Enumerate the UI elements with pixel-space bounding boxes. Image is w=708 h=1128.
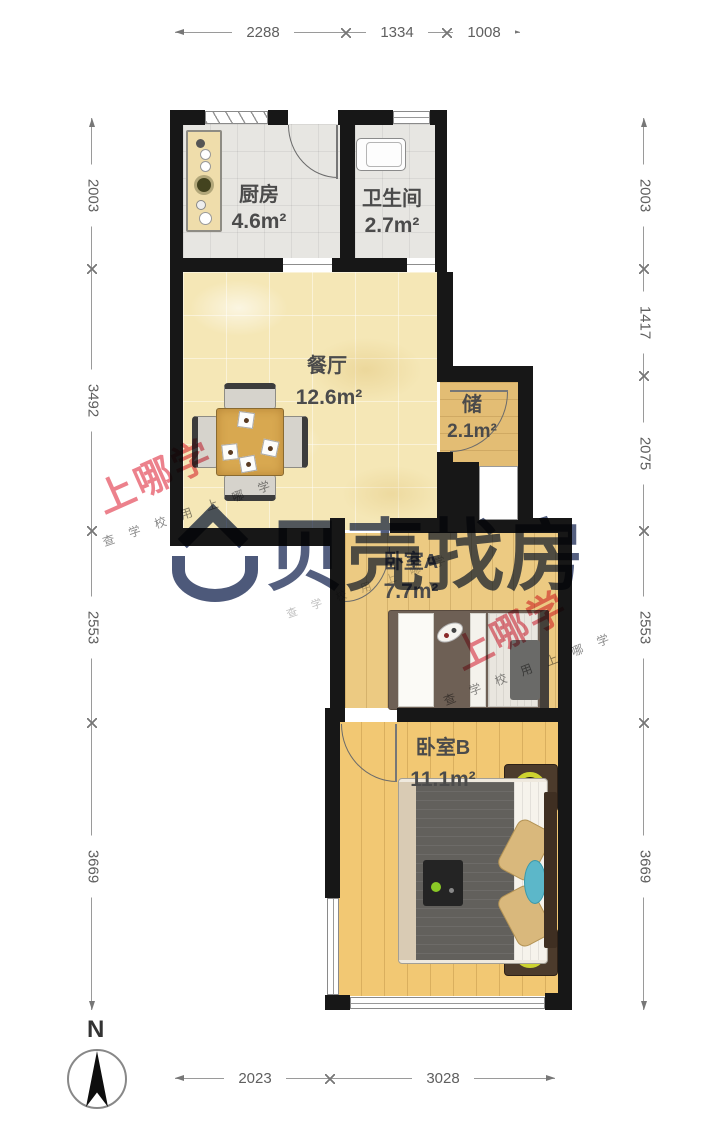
bathroom-label: 卫生间 — [352, 188, 432, 210]
bedroom-b-area: 11.1m² — [397, 768, 489, 791]
wall-segment — [332, 258, 355, 272]
wall-bath-right — [435, 110, 447, 272]
watermark-logo-smile-icon — [172, 556, 258, 602]
dining-label: 餐厅 — [287, 355, 367, 377]
wall-filler-block — [437, 462, 479, 522]
wall-bedroom-a-right — [558, 518, 572, 722]
place-setting — [237, 411, 255, 429]
wall-segment — [435, 258, 447, 272]
dimension-joint-icon — [639, 264, 649, 274]
dimension-joint-icon — [442, 28, 452, 38]
opening-threshold — [407, 264, 435, 265]
dimension-joint-icon — [639, 526, 649, 536]
sink-bowl-icon — [200, 161, 211, 172]
bathtub — [356, 138, 406, 171]
dim-left-1: 2003 — [85, 165, 102, 227]
shaft-box — [479, 466, 518, 520]
dimension-joint-icon — [639, 718, 649, 728]
hob-icon — [196, 200, 206, 210]
kitchen-label: 厨房 — [219, 184, 299, 206]
storage-door-leaf — [450, 390, 508, 392]
dimension-joint-icon — [87, 526, 97, 536]
bed-b-edge — [399, 782, 416, 960]
dining-chair-left — [192, 416, 219, 468]
sink-bowl-icon — [200, 149, 211, 160]
dim-right-5: 3669 — [637, 836, 654, 898]
dim-bottom-1: 2023 — [224, 1070, 286, 1087]
dining-chair-right — [281, 416, 308, 468]
bed-a-headboard — [540, 610, 549, 710]
north-label: N — [87, 1016, 104, 1044]
kitchen-area: 4.6m² — [219, 210, 299, 233]
dimension-joint-icon — [87, 264, 97, 274]
place-setting — [261, 439, 280, 458]
dimension-chain-top: 2288 1334 1008 — [175, 24, 520, 41]
dim-left-2: 3492 — [85, 370, 102, 432]
bathtub-inner — [366, 142, 402, 167]
dimension-joint-icon — [87, 718, 97, 728]
bedroom-b-label: 卧室B — [403, 737, 483, 759]
dim-left-3: 2553 — [85, 597, 102, 659]
entry-door-leaf — [336, 125, 338, 179]
dim-top-2: 1334 — [366, 24, 428, 41]
dining-chair-bottom — [224, 474, 276, 501]
stove-burner-icon — [197, 178, 211, 192]
dimension-joint-icon — [325, 1074, 335, 1084]
dimension-joint-icon — [639, 371, 649, 381]
bedroom-a-area: 7.7m² — [371, 580, 451, 603]
hob-icon — [199, 212, 212, 225]
wall-dining-right — [437, 272, 453, 376]
dim-left-4: 3669 — [85, 836, 102, 898]
wall-dining-bottom — [170, 528, 345, 546]
bedroom-b-left-window — [327, 898, 339, 995]
dim-top-3: 1008 — [453, 24, 515, 41]
bathroom-window — [393, 111, 430, 124]
wall-bedroom-a-top — [390, 518, 572, 533]
dining-chair-top — [224, 383, 276, 410]
dimension-chain-right: 2003 1417 2075 2553 3669 — [636, 118, 652, 1010]
dim-bottom-2: 3028 — [412, 1070, 474, 1087]
storage-label: 储 — [450, 394, 494, 416]
bed-a-duvet — [398, 613, 434, 707]
wall-left — [170, 110, 183, 546]
wall-segment — [355, 258, 407, 272]
dimension-chain-left: 2003 3492 2553 3669 — [84, 118, 100, 1010]
wall-segment — [170, 258, 283, 272]
dimension-joint-icon — [341, 28, 351, 38]
bedroom-b-bottom-window — [350, 997, 545, 1009]
place-setting — [221, 443, 239, 461]
bathroom-area: 2.7m² — [352, 214, 432, 237]
wall-bedroom-divider — [397, 708, 572, 722]
wall-corner — [325, 995, 350, 1010]
wall-bedroom-a-left — [330, 518, 345, 722]
bed-b-accent-pillow — [524, 860, 546, 904]
floor-plan-page: { "rooms": { "kitchen": {"name": "厨房", "… — [0, 0, 708, 1128]
opening-threshold — [283, 264, 332, 265]
bed-a-shadow — [510, 640, 540, 700]
wall-bedroom-b-right — [558, 708, 572, 1010]
dim-top-1: 2288 — [232, 24, 294, 41]
faucet-icon — [196, 139, 205, 148]
bedroom-a-label: 卧室A — [371, 551, 451, 573]
dim-right-4: 2553 — [637, 597, 654, 659]
dim-right-1: 2003 — [637, 165, 654, 227]
wall-segment — [268, 110, 288, 125]
bed-b-headboard — [544, 792, 557, 948]
wall-storage-right — [518, 366, 533, 532]
dim-right-3: 2075 — [637, 423, 654, 485]
storage-area: 2.1m² — [436, 422, 508, 443]
wall-bedroom-b-left — [325, 708, 340, 898]
dimension-chain-bottom: 2023 3028 — [175, 1070, 555, 1087]
dim-right-2: 1417 — [637, 292, 654, 354]
kitchen-window — [205, 111, 268, 124]
wall-segment — [355, 110, 393, 125]
bed-b-tray — [423, 860, 463, 906]
place-setting — [239, 455, 258, 474]
bed-a-sheet — [470, 613, 486, 707]
dining-area: 12.6m² — [282, 386, 376, 409]
